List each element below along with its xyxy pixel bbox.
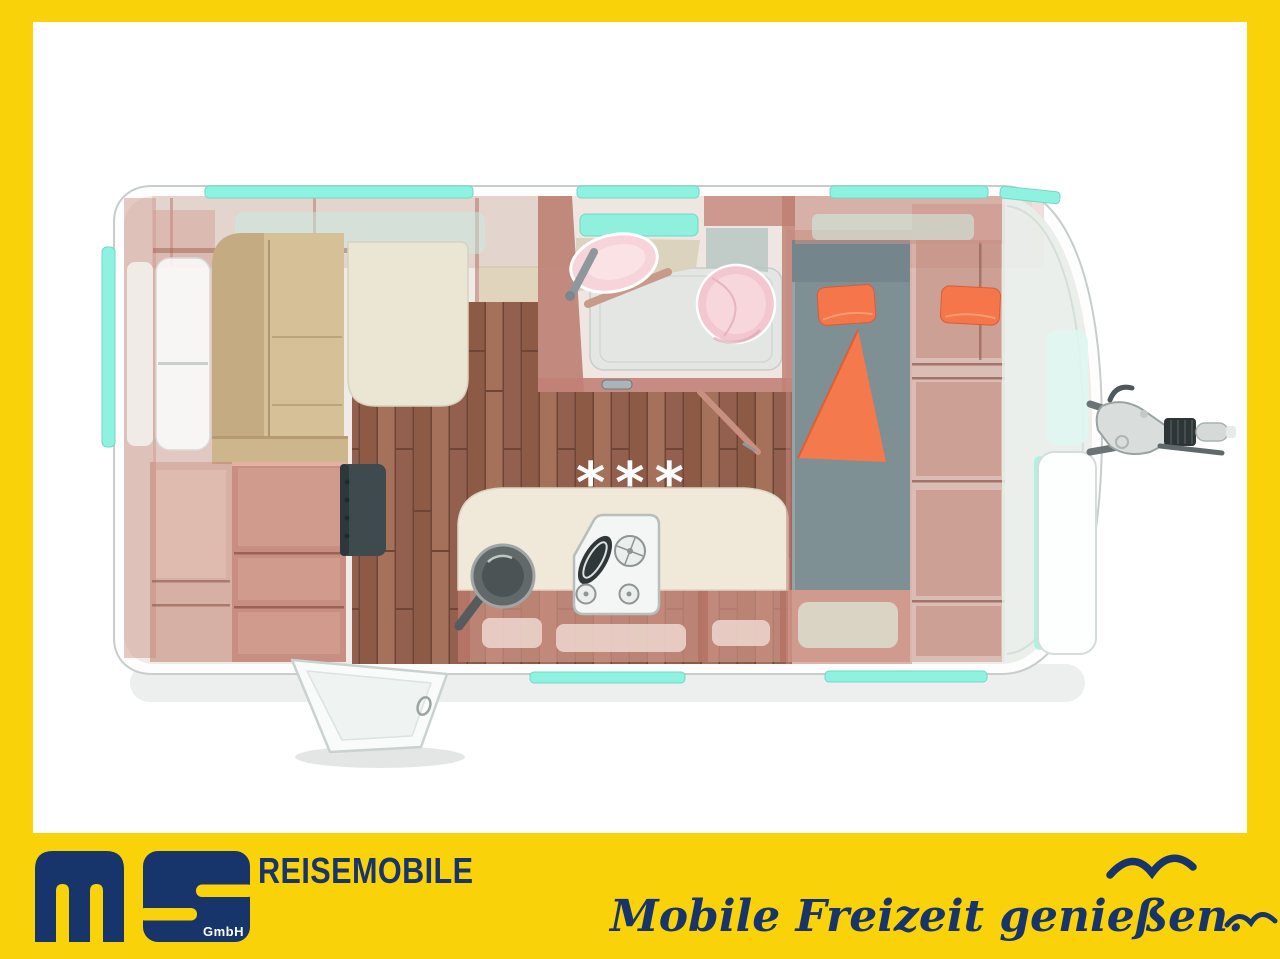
- seagull-icon-large: [1110, 858, 1193, 875]
- star-rating: ***: [576, 451, 694, 516]
- dinette-seats: [212, 233, 348, 464]
- front-door-window: [1038, 452, 1096, 654]
- brand-wordmark: REISEMOBILE: [258, 850, 474, 892]
- logo-m-shape: [35, 851, 124, 942]
- dealer-banner: GmbH REISEMOBILE Mobile Freizeit genieße…: [0, 833, 1280, 959]
- bed: [786, 230, 912, 664]
- pillow: [940, 286, 1001, 326]
- dinette-table: [348, 242, 468, 406]
- door-handle-icon: [602, 380, 632, 389]
- tv-panel: [340, 464, 386, 556]
- rear-side-window: [102, 247, 115, 447]
- logo-gmbh-label: GmbH: [203, 924, 244, 939]
- caravan-floorplan: ***: [33, 22, 1247, 833]
- seagull-icons: [1090, 843, 1280, 953]
- pillow: [817, 284, 877, 326]
- entry-door-open: [292, 660, 465, 768]
- tow-hitch: [1090, 387, 1236, 454]
- drawer-chest: [232, 462, 346, 662]
- rear-wardrobe: [150, 462, 232, 662]
- toilet-icon: [697, 265, 775, 343]
- listing-image-canvas: ***: [33, 22, 1247, 833]
- ms-logo: [0, 833, 260, 959]
- seagull-icon-small: [1227, 914, 1275, 925]
